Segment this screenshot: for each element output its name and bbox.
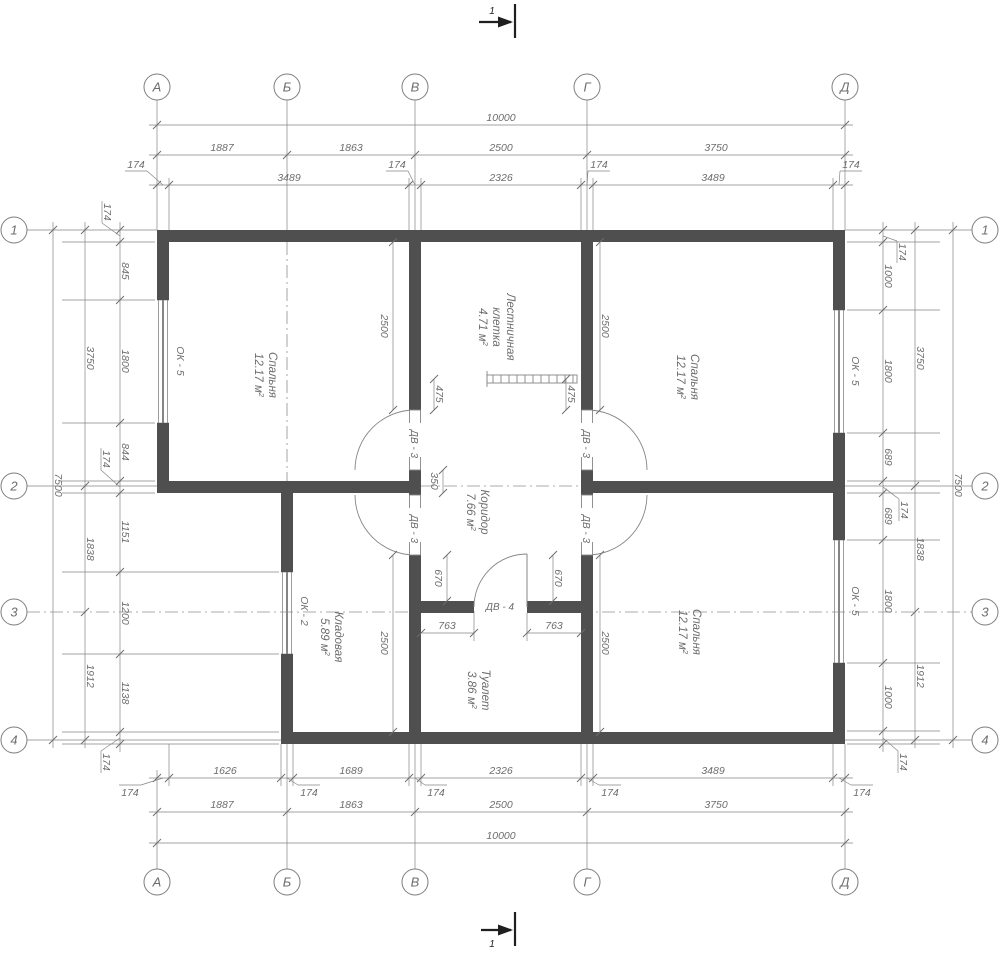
svg-text:1800: 1800 [119, 349, 131, 373]
svg-text:174: 174 [842, 159, 860, 171]
svg-text:475: 475 [433, 385, 445, 403]
dim-chain: 10000 [149, 830, 853, 847]
svg-text:1689: 1689 [339, 765, 363, 777]
svg-text:7500: 7500 [52, 473, 64, 497]
room-label: Спальня12.17 м2 [674, 354, 700, 400]
svg-text:2500: 2500 [488, 142, 513, 154]
axis-circle-Г: Г [574, 869, 600, 895]
svg-text:Г: Г [583, 80, 591, 95]
svg-text:4: 4 [10, 733, 17, 748]
svg-text:3.86 м2: 3.86 м2 [465, 671, 479, 709]
svg-text:1: 1 [489, 939, 495, 950]
dim-chain: 1887186325003750 [149, 142, 853, 159]
dim-interior: 2500 [596, 551, 611, 736]
wall [421, 601, 474, 613]
window-ок-5: ОК - 5 [835, 310, 862, 433]
svg-text:174: 174 [590, 159, 608, 171]
axis-circle-1: 1 [972, 217, 998, 243]
wall [833, 663, 845, 744]
svg-text:174: 174 [427, 787, 445, 799]
svg-text:ДВ - 4: ДВ - 4 [485, 602, 515, 613]
section-mark: 1 [481, 912, 515, 950]
door-дв-4: ДВ - 4 [474, 554, 527, 613]
svg-text:3: 3 [10, 605, 18, 620]
dim-chain: 1626168923263489174174174174174 [119, 765, 873, 799]
svg-text:Б: Б [283, 875, 292, 890]
dim-chain: 1887186325003750 [149, 799, 853, 816]
svg-text:1000: 1000 [882, 685, 894, 709]
svg-text:Коридор: Коридор [478, 489, 490, 535]
floor-plan-canvas: ОК - 5ОК - 5ОК - 5ОК - 2ДВ - 3ДВ - 3ДВ -… [0, 0, 1000, 955]
svg-text:В: В [411, 875, 420, 890]
axis-circle-2: 2 [972, 473, 998, 499]
axis-circle-А: А [144, 869, 170, 895]
room-labels-layer: Спальня12.17 м2Спальня12.17 м2Спальня12.… [252, 292, 702, 710]
svg-text:Лестничная: Лестничная [504, 292, 516, 360]
dim-chain: 10000 [149, 112, 853, 129]
svg-text:1887: 1887 [210, 799, 235, 811]
svg-text:В: В [411, 80, 420, 95]
dim-chain: 7500 [49, 222, 64, 748]
svg-text:763: 763 [545, 620, 563, 632]
door-дв-3: ДВ - 3 [580, 410, 647, 470]
svg-text:350: 350 [428, 472, 440, 490]
svg-text:174: 174 [100, 450, 112, 468]
wall [833, 242, 845, 310]
svg-text:10000: 10000 [486, 830, 515, 842]
svg-text:1000: 1000 [882, 264, 894, 288]
dim-interior: 763 [523, 620, 585, 637]
wall [581, 470, 593, 495]
door-дв-3: ДВ - 3 [580, 495, 647, 555]
svg-text:7500: 7500 [952, 473, 964, 497]
svg-text:1863: 1863 [339, 799, 363, 811]
svg-text:Г: Г [583, 875, 591, 890]
dim-interior: 2500 [378, 238, 397, 414]
svg-text:670: 670 [552, 569, 564, 587]
svg-text:клетка: клетка [490, 307, 502, 347]
svg-text:1912: 1912 [914, 664, 926, 688]
svg-text:174: 174 [121, 787, 139, 799]
svg-text:1: 1 [10, 223, 17, 238]
wall [409, 470, 421, 495]
window-label: ОК - 2 [298, 596, 310, 626]
svg-text:1: 1 [981, 223, 988, 238]
room-label: Кладовая5.89 м2 [318, 612, 344, 663]
svg-text:2500: 2500 [599, 630, 611, 655]
svg-text:Спальня: Спальня [688, 354, 700, 400]
svg-text:7.66 м2: 7.66 м2 [464, 493, 478, 531]
svg-text:ДВ - 3: ДВ - 3 [408, 429, 419, 459]
svg-text:1838: 1838 [914, 537, 926, 561]
axis-circle-В: В [402, 74, 428, 100]
svg-text:689: 689 [882, 448, 894, 466]
svg-text:1863: 1863 [339, 142, 363, 154]
window-ок-2: ОК - 2 [283, 572, 311, 654]
axis-circle-3: 3 [972, 599, 998, 625]
svg-text:1: 1 [489, 6, 495, 17]
window-ок-5: ОК - 5 [159, 300, 187, 423]
room-label: Спальня12.17 м2 [676, 609, 702, 655]
svg-text:1626: 1626 [213, 765, 237, 777]
svg-text:2500: 2500 [378, 313, 390, 338]
svg-text:Д: Д [838, 875, 849, 890]
svg-text:3750: 3750 [84, 346, 96, 370]
wall [157, 230, 845, 242]
dim-interior: 350 [428, 466, 447, 497]
svg-text:4: 4 [981, 733, 988, 748]
wall [409, 242, 421, 410]
svg-text:1151: 1151 [119, 521, 131, 544]
wall [581, 481, 845, 493]
dim-interior: 2500 [378, 551, 397, 736]
svg-text:475: 475 [565, 385, 577, 403]
svg-text:3: 3 [981, 605, 989, 620]
svg-text:174: 174 [127, 159, 145, 171]
svg-text:174: 174 [101, 203, 113, 221]
wall [527, 601, 581, 613]
floor-plan-svg: ОК - 5ОК - 5ОК - 5ОК - 2ДВ - 3ДВ - 3ДВ -… [0, 0, 1000, 955]
axis-circle-А: А [144, 74, 170, 100]
svg-text:670: 670 [432, 569, 444, 587]
door-дв-3: ДВ - 3 [355, 410, 421, 470]
axis-circle-4: 4 [972, 727, 998, 753]
axis-circle-Д: Д [832, 74, 858, 100]
svg-text:174: 174 [601, 787, 619, 799]
wall [833, 433, 845, 540]
svg-text:174: 174 [896, 243, 908, 261]
svg-text:Б: Б [283, 80, 292, 95]
axis-circle-Б: Б [274, 869, 300, 895]
window-label: ОК - 5 [174, 346, 186, 376]
window-ок-5: ОК - 5 [835, 540, 862, 663]
svg-text:12.17 м2: 12.17 м2 [252, 353, 266, 398]
dim-interior: 763 [417, 620, 478, 637]
svg-text:3489: 3489 [701, 172, 725, 184]
dim-chain: 375018381912 [81, 222, 96, 748]
svg-text:1887: 1887 [210, 142, 235, 154]
dim-chain: 375018381912 [911, 222, 926, 748]
svg-text:ДВ - 3: ДВ - 3 [580, 514, 591, 544]
svg-text:2: 2 [9, 479, 18, 494]
svg-text:А: А [152, 80, 162, 95]
svg-text:689: 689 [882, 507, 894, 525]
dim-chain: 8451800844115112001138174174174 [100, 201, 131, 773]
svg-text:174: 174 [100, 753, 112, 771]
axis-circle-Д: Д [832, 869, 858, 895]
door-дв-3: ДВ - 3 [355, 495, 421, 555]
wall [281, 493, 293, 572]
svg-text:1200: 1200 [119, 601, 131, 625]
dim-interior: 670 [432, 551, 451, 605]
svg-text:2500: 2500 [378, 630, 390, 655]
wall [581, 242, 593, 410]
dim-interior: 475 [562, 375, 577, 414]
svg-text:2: 2 [980, 479, 989, 494]
svg-text:2326: 2326 [488, 172, 513, 184]
svg-text:3750: 3750 [704, 799, 728, 811]
svg-text:1912: 1912 [84, 664, 96, 688]
axis-circle-Г: Г [574, 74, 600, 100]
svg-text:1138: 1138 [119, 682, 131, 705]
svg-text:174: 174 [300, 787, 318, 799]
svg-text:174: 174 [897, 753, 909, 771]
svg-text:763: 763 [438, 620, 456, 632]
svg-text:174: 174 [898, 501, 910, 519]
svg-text:4.71 м2: 4.71 м2 [476, 308, 490, 346]
svg-text:3489: 3489 [701, 765, 725, 777]
window-label: ОК - 5 [849, 586, 861, 616]
axis-circle-В: В [402, 869, 428, 895]
room-label: Спальня12.17 м2 [252, 352, 278, 398]
dim-interior: 670 [549, 551, 564, 605]
svg-text:12.17 м2: 12.17 м2 [674, 355, 688, 400]
svg-text:ДВ - 3: ДВ - 3 [408, 514, 419, 544]
axis-circle-4: 4 [1, 727, 27, 753]
svg-text:3750: 3750 [914, 346, 926, 370]
svg-text:А: А [152, 875, 162, 890]
wall [281, 732, 845, 744]
dim-interior: 475 [430, 375, 445, 414]
wall [157, 481, 421, 493]
axis-circle-2: 2 [1, 473, 27, 499]
svg-text:3750: 3750 [704, 142, 728, 154]
svg-text:Д: Д [838, 80, 849, 95]
wall [409, 555, 421, 744]
wall [281, 654, 293, 744]
svg-text:1800: 1800 [882, 359, 894, 383]
svg-text:Кладовая: Кладовая [332, 612, 344, 663]
svg-text:845: 845 [119, 262, 131, 280]
room-label: Туалет3.86 м2 [465, 670, 491, 711]
stair-railing [487, 371, 577, 387]
dim-chain: 348923263489174174174174 [125, 159, 862, 189]
dim-interior: 2500 [596, 238, 611, 414]
room-label: Лестничнаяклетка4.71 м2 [476, 292, 516, 360]
section-mark: 1 [479, 4, 515, 38]
svg-text:174: 174 [388, 159, 406, 171]
window-label: ОК - 5 [849, 356, 861, 386]
svg-text:2326: 2326 [488, 765, 513, 777]
axis-circle-Б: Б [274, 74, 300, 100]
svg-text:5.89 м2: 5.89 м2 [318, 618, 332, 656]
svg-text:174: 174 [853, 787, 871, 799]
dim-chain: 7500 [949, 222, 964, 748]
axis-circle-3: 3 [1, 599, 27, 625]
svg-text:2500: 2500 [488, 799, 513, 811]
svg-text:2500: 2500 [599, 313, 611, 338]
axis-circle-1: 1 [1, 217, 27, 243]
svg-text:844: 844 [119, 443, 131, 461]
svg-text:10000: 10000 [486, 112, 515, 124]
dim-chain: 1000180068968918001000174174174 [879, 222, 910, 773]
svg-text:12.17 м2: 12.17 м2 [676, 610, 690, 655]
svg-text:3489: 3489 [277, 172, 301, 184]
svg-text:Спальня: Спальня [690, 609, 702, 655]
wall [157, 242, 169, 300]
svg-text:Туалет: Туалет [479, 670, 491, 711]
svg-text:1838: 1838 [84, 537, 96, 561]
wall [581, 555, 593, 744]
room-label: Коридор7.66 м2 [464, 489, 490, 535]
svg-text:ДВ - 3: ДВ - 3 [580, 429, 591, 459]
svg-text:Спальня: Спальня [266, 352, 278, 398]
svg-text:1800: 1800 [882, 589, 894, 613]
